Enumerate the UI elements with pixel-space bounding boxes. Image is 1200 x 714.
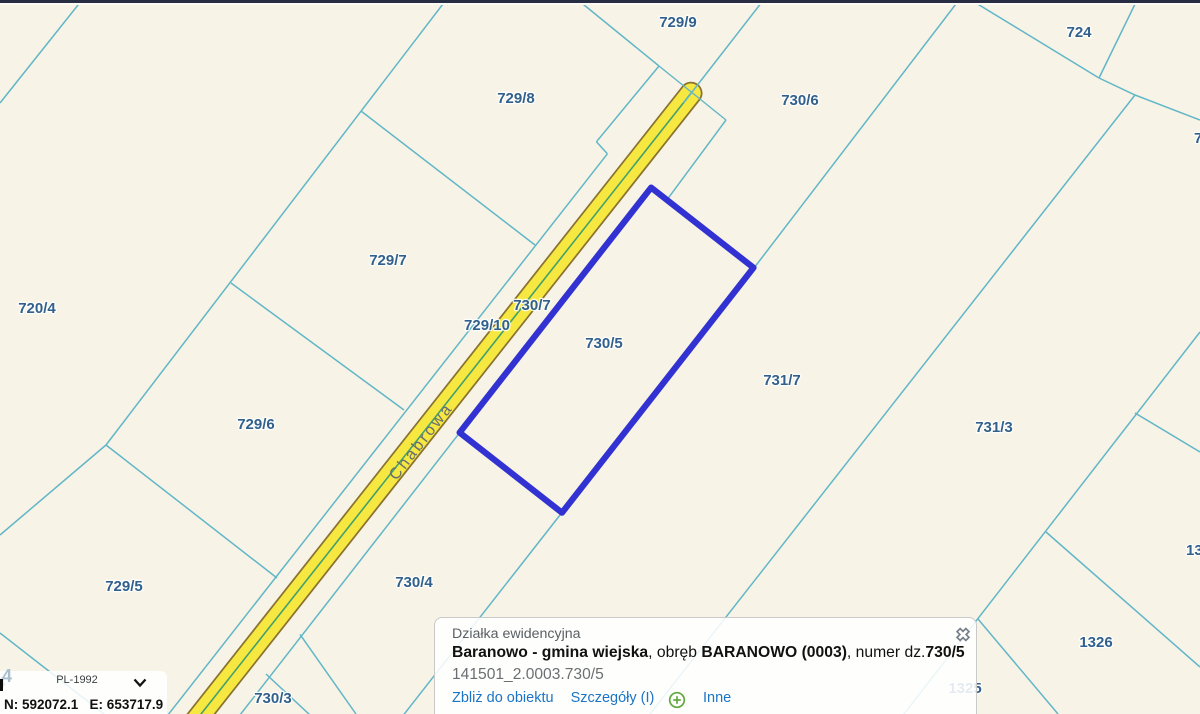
svg-text:724: 724 [1066, 24, 1092, 41]
svg-text:730/6: 730/6 [781, 92, 819, 109]
svg-text:729/8: 729/8 [497, 90, 535, 107]
svg-text:1326: 1326 [1079, 634, 1112, 651]
svg-text:729/6: 729/6 [237, 416, 275, 433]
svg-text:730/5: 730/5 [585, 335, 623, 352]
svg-text:730/7: 730/7 [513, 297, 551, 314]
svg-text:731/7: 731/7 [763, 372, 801, 389]
svg-text:720/4: 720/4 [18, 300, 56, 317]
svg-text:729/10: 729/10 [464, 317, 510, 334]
svg-text:729/9: 729/9 [659, 14, 697, 31]
svg-text:731/3: 731/3 [975, 419, 1013, 436]
svg-text:729/7: 729/7 [369, 252, 407, 269]
svg-text:7: 7 [1194, 130, 1200, 147]
svg-text:730/4: 730/4 [395, 574, 433, 591]
svg-text:729/5: 729/5 [105, 578, 143, 595]
svg-text:13: 13 [1186, 542, 1200, 559]
svg-text:730/3: 730/3 [254, 690, 292, 707]
